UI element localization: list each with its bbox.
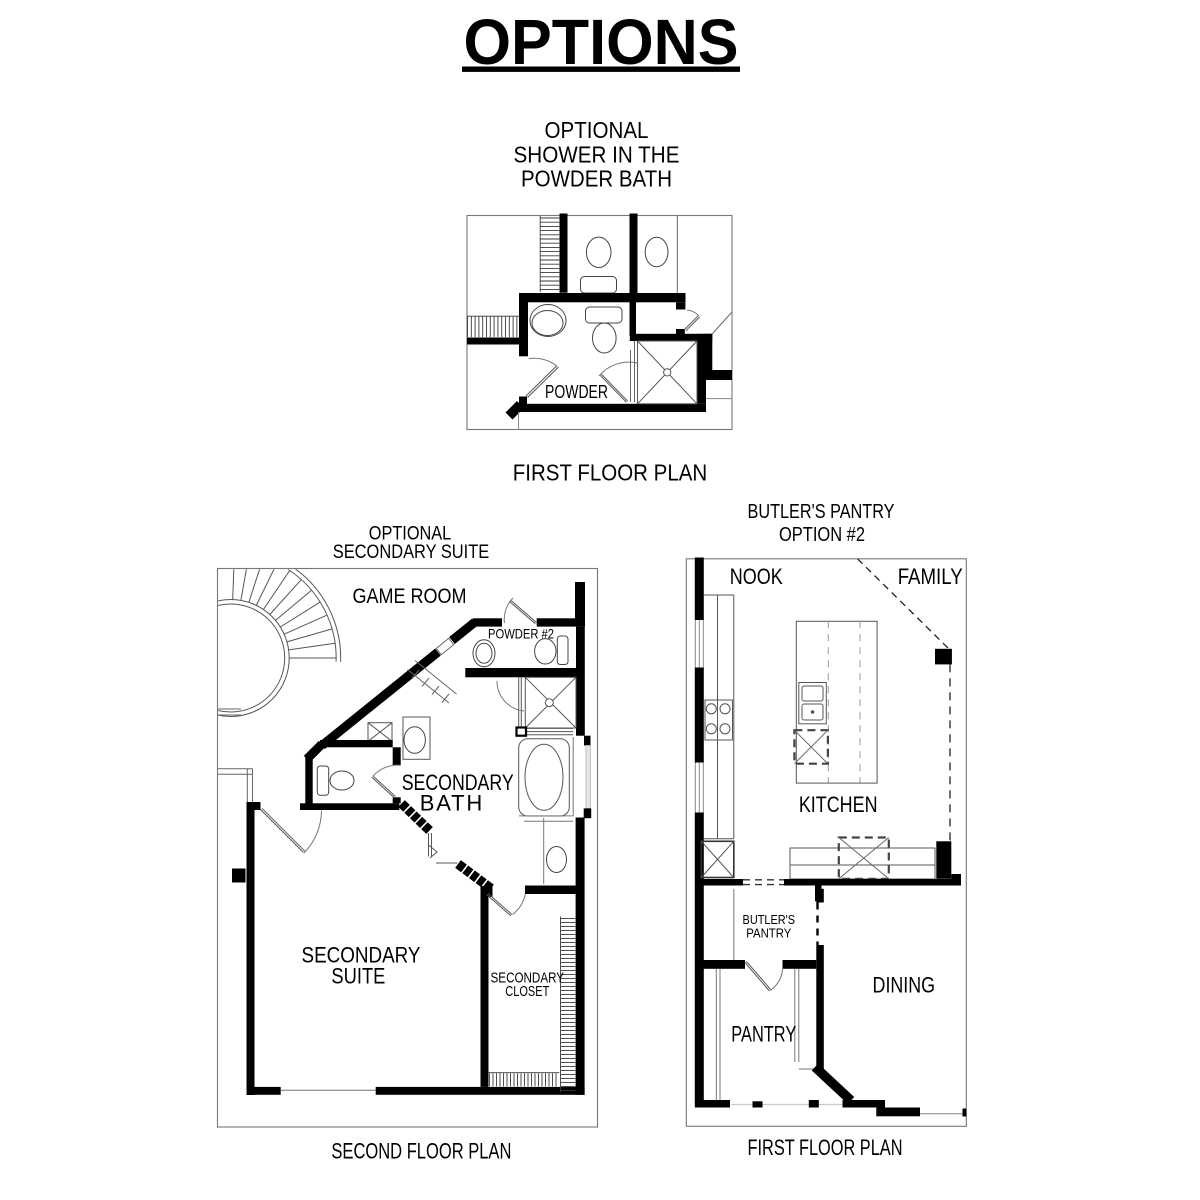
svg-text:SECONDARY SUITE: SECONDARY SUITE xyxy=(333,542,490,563)
svg-text:FAMILY: FAMILY xyxy=(898,564,963,589)
svg-text:BATH: BATH xyxy=(420,791,483,816)
svg-text:POWDER #2: POWDER #2 xyxy=(488,626,554,642)
svg-text:POWDER BATH: POWDER BATH xyxy=(521,166,672,192)
svg-text:GAME ROOM: GAME ROOM xyxy=(353,585,467,608)
svg-text:KITCHEN: KITCHEN xyxy=(799,792,878,817)
svg-text:FIRST FLOOR PLAN: FIRST FLOOR PLAN xyxy=(748,1135,903,1160)
svg-text:POWDER: POWDER xyxy=(545,382,608,402)
svg-text:NOOK: NOOK xyxy=(730,564,783,589)
svg-text:SHOWER IN THE: SHOWER IN THE xyxy=(514,141,680,167)
svg-text:BUTLER'S: BUTLER'S xyxy=(743,913,796,927)
svg-text:FIRST FLOOR PLAN: FIRST FLOOR PLAN xyxy=(513,460,708,486)
svg-text:SUITE: SUITE xyxy=(331,963,385,988)
svg-text:BUTLER'S PANTRY: BUTLER'S PANTRY xyxy=(748,501,895,523)
svg-text:SECOND FLOOR PLAN: SECOND FLOOR PLAN xyxy=(331,1139,511,1164)
svg-text:DINING: DINING xyxy=(873,973,936,998)
svg-text:PANTRY: PANTRY xyxy=(731,1021,796,1046)
svg-text:OPTION #2: OPTION #2 xyxy=(779,524,865,546)
svg-text:OPTIONAL: OPTIONAL xyxy=(545,117,649,143)
svg-text:PANTRY: PANTRY xyxy=(746,927,792,941)
svg-text:CLOSET: CLOSET xyxy=(505,984,549,1000)
